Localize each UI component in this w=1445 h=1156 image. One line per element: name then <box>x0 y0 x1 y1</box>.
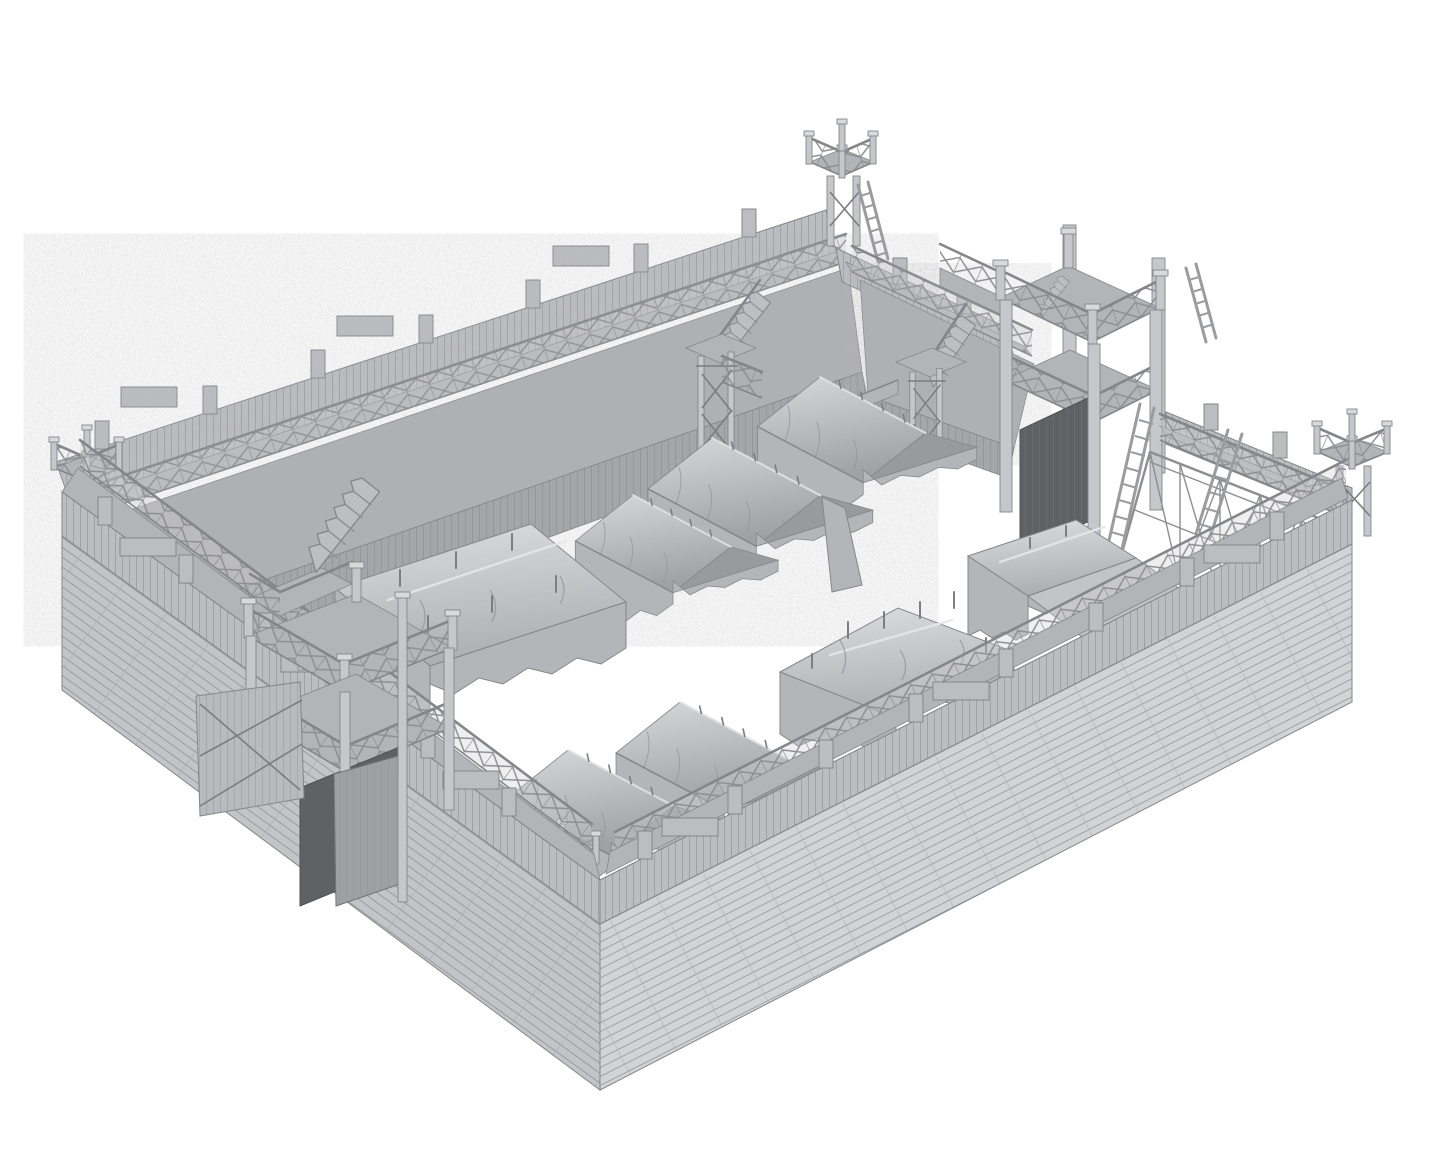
truss-merlon-tab <box>1204 404 1218 430</box>
truss-merlon-tab <box>1273 432 1287 458</box>
gatehouse-post <box>1000 300 1012 512</box>
wg-inner-door <box>334 756 400 906</box>
wg-mast <box>398 596 407 902</box>
render-canvas: Wooden palisade fortress — gray 3D model… <box>0 0 1445 1156</box>
wg-open-door <box>196 682 304 816</box>
leaning-ladder-long <box>1108 404 1154 549</box>
gatehouse-post <box>1088 344 1100 558</box>
wg-post <box>444 648 454 810</box>
fort-render: Wooden palisade fortress — gray 3D model… <box>0 0 1445 1156</box>
gatehouse-ladder <box>1186 264 1216 342</box>
